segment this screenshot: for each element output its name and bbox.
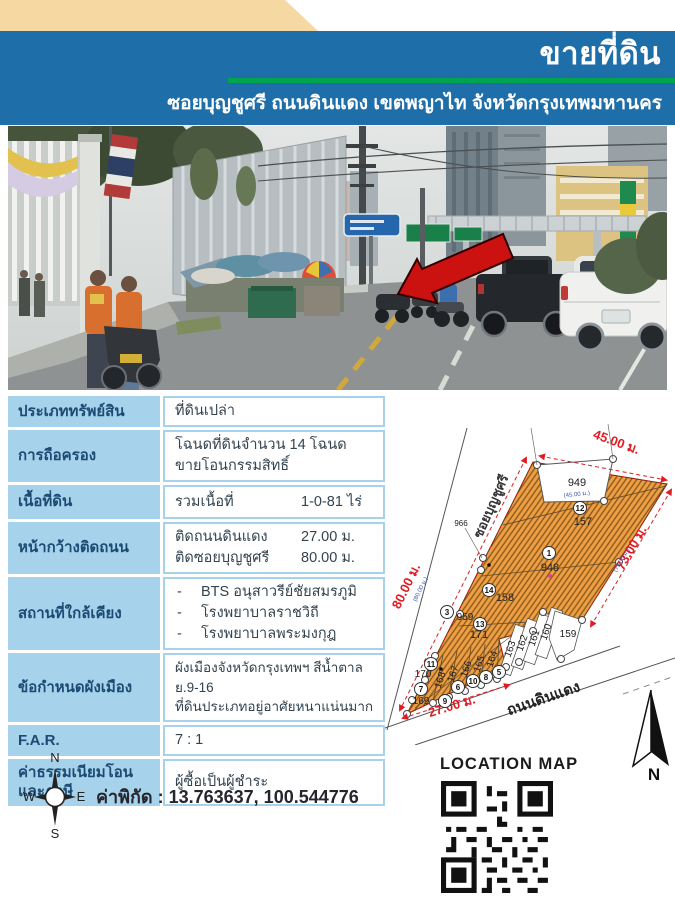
taillight [561, 286, 568, 300]
svg-text:6: 6 [456, 683, 461, 692]
property-table: ประเภททรัพย์สิน ที่ดินเปล่า การถือครอง โ… [8, 396, 385, 806]
row-label: หน้ากว้างติดถนน [8, 522, 160, 574]
dim-left: 80.00 ม. [389, 561, 424, 611]
svg-text:169: 169 [413, 696, 430, 707]
pin-marker [548, 574, 552, 578]
svg-text:3: 3 [445, 608, 450, 617]
svg-text:7: 7 [419, 685, 424, 694]
coordinates-text: ค่าพิกัด : 13.763637, 100.544776 [96, 782, 359, 811]
main-road-label: ถนนดินแดง [504, 677, 582, 719]
header-bar: ขายที่ดิน ซอยบุญชูศรี ถนนดินแดง เขตพญาไท… [0, 31, 675, 125]
qr-code-graphic [441, 781, 553, 893]
row-label: ประเภททรัพย์สิน [8, 396, 160, 427]
svg-text:5: 5 [497, 668, 502, 677]
umbrella-blue [258, 252, 310, 272]
svg-text:959: 959 [457, 612, 474, 623]
corner-decoration [0, 0, 320, 31]
north-arrow-icon: N [624, 686, 675, 782]
vine [236, 166, 256, 206]
survey-dot [439, 667, 443, 671]
north-arrow: N [624, 686, 675, 787]
street-photo [8, 126, 667, 390]
row-value: ติดถนนดินแดง 27.00 ม. ติดซอยบุญชูศรี 80.… [163, 522, 385, 574]
svg-text:948: 948 [541, 562, 559, 574]
compass-w: W [23, 789, 36, 804]
survey-dot [487, 563, 491, 567]
svg-text:158: 158 [496, 592, 514, 604]
row-label: การถือครอง [8, 430, 160, 482]
compass-n: N [50, 750, 59, 765]
svg-text:14: 14 [485, 586, 494, 595]
row-value: ที่ดินเปล่า [163, 396, 385, 427]
svg-text:966: 966 [454, 519, 468, 528]
svg-text:12: 12 [576, 504, 585, 513]
svg-text:157: 157 [574, 516, 592, 528]
address-subtitle: ซอยบุญชูศรี ถนนดินแดง เขตพญาไท จังหวัดกร… [167, 88, 662, 118]
row-value: 7 : 1 [163, 725, 385, 756]
row-value: -BTS อนุสาวรีย์ชัยสมรภูมิ -โรงพยาบาลราชว… [163, 577, 385, 650]
row-value: ผังเมืองจังหวัดกรุงเทพฯ สีน้ำตาล ย.9-16 … [163, 653, 385, 722]
dim-top: 45.00 ม. [591, 426, 642, 457]
flyer-page: ขายที่ดิน ซอยบุญชูศรี ถนนดินแดง เขตพญาไท… [0, 0, 675, 900]
row-label: สถานที่ใกล้เคียง [8, 577, 160, 650]
compass-e: E [77, 789, 86, 804]
dumpster [248, 288, 296, 318]
table-row: หน้ากว้างติดถนน ติดถนนดินแดง 27.00 ม. ติ… [8, 522, 385, 574]
svg-text:10: 10 [469, 677, 478, 686]
qr-code [441, 781, 553, 898]
svg-text:8: 8 [484, 673, 489, 682]
north-label: N [648, 765, 660, 782]
location-map-label: LOCATION MAP [440, 755, 578, 774]
license-plate [120, 354, 142, 363]
compass-rose: N S W E [22, 748, 88, 845]
table-row: เนื้อที่ดิน รวมเนื้อที่ 1-0-81 ไร่ [8, 485, 385, 519]
table-row: ข้อกำหนดผังเมือง ผังเมืองจังหวัดกรุงเทพฯ… [8, 653, 385, 722]
page-title: ขายที่ดิน [539, 33, 661, 75]
svg-text:11: 11 [427, 660, 436, 669]
svg-text:1: 1 [547, 549, 552, 558]
table-row: การถือครอง โฉนดที่ดินจำนวน 14 โฉนด ขายโอ… [8, 430, 385, 482]
vine [190, 148, 218, 200]
row-label: ข้อกำหนดผังเมือง [8, 653, 160, 722]
svg-text:159: 159 [560, 629, 577, 640]
svg-text:9: 9 [443, 697, 448, 706]
table-row: สถานที่ใกล้เคียง -BTS อนุสาวรีย์ชัยสมรภู… [8, 577, 385, 650]
title-underline [228, 78, 675, 83]
row-value: โฉนดที่ดินจำนวน 14 โฉนด ขายโอนกรรมสิทธิ์ [163, 430, 385, 482]
street-photo-graphic [8, 126, 667, 390]
svg-text:13: 13 [476, 620, 485, 629]
row-label: เนื้อที่ดิน [8, 485, 160, 519]
table-row: ประเภททรัพย์สิน ที่ดินเปล่า [8, 396, 385, 427]
overhead-road-signs [406, 224, 482, 242]
row-value: รวมเนื้อที่ 1-0-81 ไร่ [163, 485, 385, 519]
compass-rose-icon: N S W E [22, 748, 88, 840]
compass-s: S [51, 826, 60, 840]
svg-text:949: 949 [568, 477, 586, 489]
